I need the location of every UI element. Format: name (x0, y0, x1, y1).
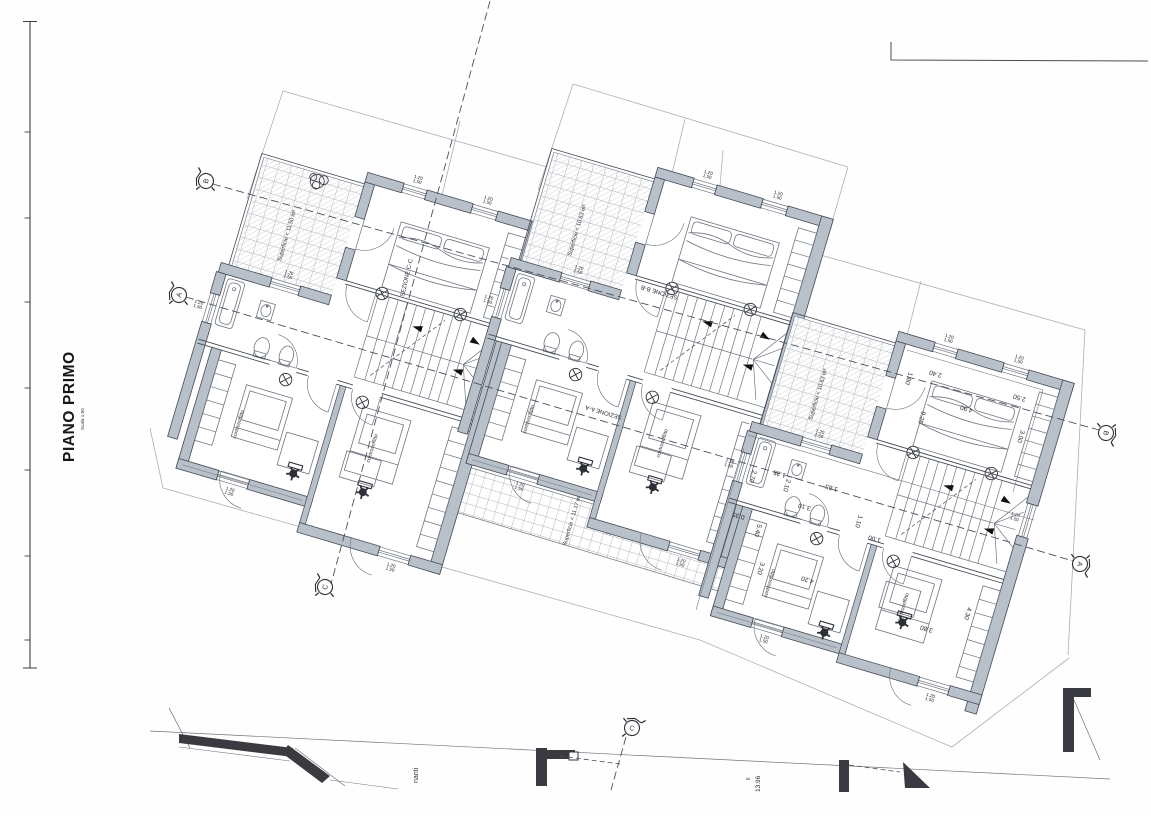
svg-text:PIANO PRIMO: PIANO PRIMO (61, 351, 78, 462)
svg-text:Scala 1:50: Scala 1:50 (80, 408, 85, 430)
svg-text:Il: Il (746, 778, 752, 781)
svg-text:13.96: 13.96 (755, 775, 762, 792)
svg-text:nanti: nanti (413, 767, 420, 783)
